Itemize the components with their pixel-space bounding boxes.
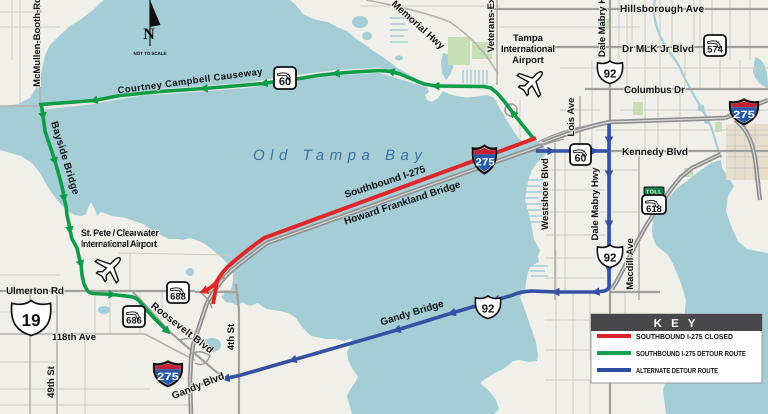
- svg-text:Dale Mabry H: Dale Mabry H: [597, 0, 608, 57]
- svg-text:Westshore Blvd: Westshore Blvd: [540, 158, 551, 230]
- svg-text:60: 60: [575, 153, 587, 165]
- svg-text:SOUTHBOUND I-275 DETOUR ROUTE: SOUTHBOUND I-275 DETOUR ROUTE: [636, 349, 746, 358]
- svg-text:NOT TO SCALE: NOT TO SCALE: [134, 51, 167, 56]
- svg-text:SOUTHBOUND I-275 CLOSED: SOUTHBOUND I-275 CLOSED: [636, 332, 733, 341]
- svg-text:686: 686: [126, 316, 142, 327]
- svg-text:92: 92: [604, 253, 617, 265]
- svg-text:275: 275: [733, 109, 755, 121]
- svg-text:International: International: [501, 44, 555, 55]
- svg-text:618: 618: [646, 204, 662, 215]
- svg-text:275: 275: [157, 371, 179, 383]
- svg-text:McMullen-Booth-Rd: McMullen-Booth-Rd: [32, 0, 43, 87]
- svg-text:Tampa: Tampa: [513, 33, 544, 44]
- svg-text:ALTERNATE DETOUR ROUTE: ALTERNATE DETOUR ROUTE: [636, 366, 718, 375]
- svg-text:N: N: [143, 26, 155, 43]
- svg-text:St. Pete / Clearwater: St. Pete / Clearwater: [81, 228, 159, 239]
- svg-text:Columbus Dr: Columbus Dr: [624, 85, 685, 96]
- svg-text:Dale Mabry Hwy: Dale Mabry Hwy: [590, 167, 601, 241]
- svg-text:Veterans-Ex: Veterans-Ex: [486, 0, 497, 52]
- svg-text:275: 275: [475, 157, 495, 169]
- svg-text:92: 92: [482, 304, 495, 316]
- svg-text:574: 574: [707, 45, 724, 56]
- svg-text:49th St: 49th St: [46, 365, 57, 398]
- svg-text:Hillsborough Ave: Hillsborough Ave: [620, 4, 704, 15]
- svg-text:Airport: Airport: [512, 55, 545, 66]
- svg-text:Macdill Ave: Macdill Ave: [625, 238, 636, 290]
- svg-text:60: 60: [279, 76, 291, 88]
- svg-text:International Airport: International Airport: [81, 239, 158, 250]
- svg-text:K E Y: K E Y: [654, 318, 699, 330]
- svg-text:118th Ave: 118th Ave: [52, 332, 96, 343]
- svg-text:19: 19: [22, 312, 41, 331]
- svg-text:4th St: 4th St: [226, 323, 237, 350]
- svg-text:Lois Ave: Lois Ave: [566, 98, 577, 137]
- svg-text:688: 688: [170, 292, 186, 303]
- svg-text:Ulmerton Rd: Ulmerton Rd: [6, 286, 64, 297]
- svg-text:92: 92: [604, 69, 617, 81]
- svg-text:Old Tampa Bay: Old Tampa Bay: [253, 147, 427, 164]
- svg-text:Dr MLK Jr Blvd: Dr MLK Jr Blvd: [622, 44, 694, 55]
- svg-text:Kennedy Blvd: Kennedy Blvd: [622, 147, 688, 158]
